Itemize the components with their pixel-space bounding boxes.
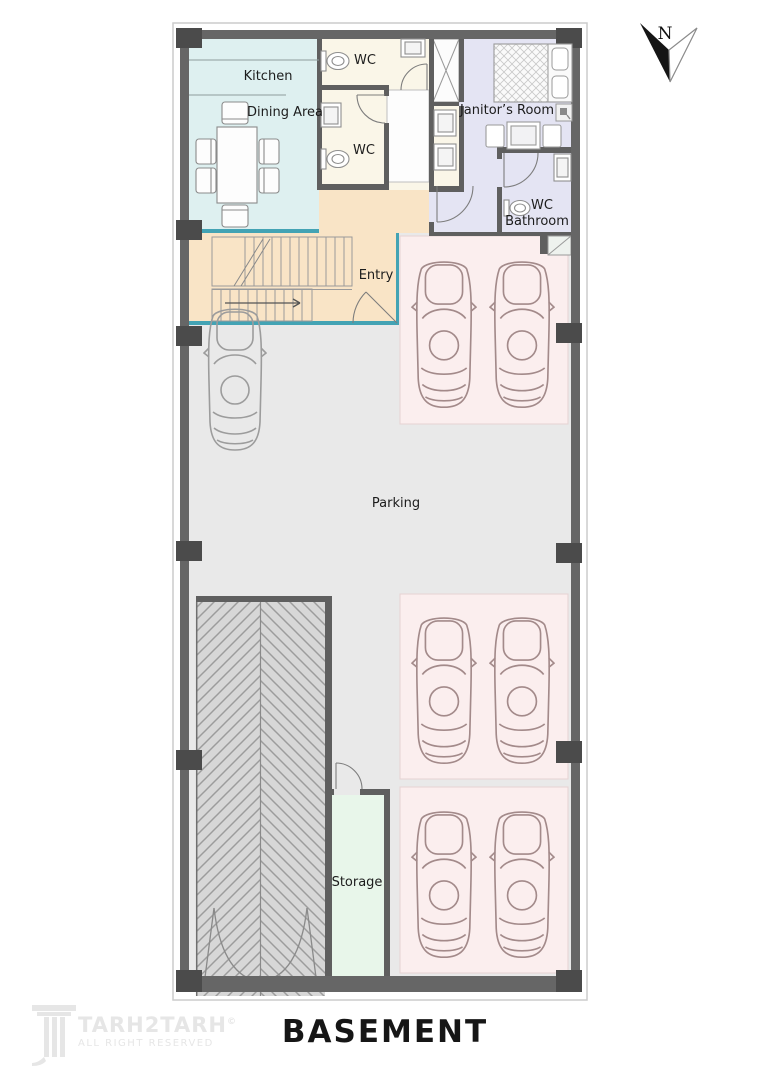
- dining-label: Dining Area: [247, 106, 323, 120]
- north-label: N: [658, 24, 673, 44]
- wc-mid-label: WC: [353, 144, 375, 158]
- parking-pad-1: [400, 236, 568, 424]
- storage-label: Storage: [332, 876, 383, 890]
- bathroom-wc-label: WC: [531, 199, 553, 213]
- watermark: TARH2TARH© ALL RIGHT RESERVED: [78, 1013, 237, 1049]
- copyright-symbol: ©: [227, 1017, 237, 1027]
- ramp: [196, 596, 332, 996]
- watermark-brand: TARH2TARH©: [78, 1013, 237, 1037]
- janitor-seating-icon: [486, 122, 561, 149]
- janitor-label: Janitor’s Room: [460, 104, 554, 118]
- entry-hall-area: [319, 190, 429, 233]
- parking-label: Parking: [372, 497, 420, 511]
- toilet-wc-top-icon: [321, 51, 349, 71]
- sink-niche-1-icon: [434, 110, 456, 136]
- entry-label: Entry: [359, 269, 394, 283]
- vent-nook: [548, 236, 571, 255]
- sink-wc-mid-icon: [321, 103, 341, 127]
- floor-plan-canvas: Kitchen Dining Area WC WC Janitor’s Room…: [0, 0, 764, 1080]
- bed-icon: [494, 44, 572, 102]
- sink-niche-2-icon: [434, 144, 456, 170]
- kitchen-label: Kitchen: [244, 70, 293, 84]
- hall-closet-area: [387, 90, 429, 182]
- toilet-wc-mid-icon: [321, 149, 349, 169]
- wall-fixture-icon: [556, 104, 572, 121]
- bathroom-label: Bathroom: [505, 215, 569, 229]
- sink-bathroom-icon: [554, 154, 571, 181]
- floor-plan-drawing: [0, 0, 764, 1080]
- column-logo-icon: [32, 1005, 76, 1066]
- page-title: BASEMENT: [282, 1014, 488, 1050]
- wc-top-label: WC: [354, 54, 376, 68]
- sink-wc-top-icon: [401, 39, 425, 57]
- watermark-tagline: ALL RIGHT RESERVED: [78, 1038, 237, 1049]
